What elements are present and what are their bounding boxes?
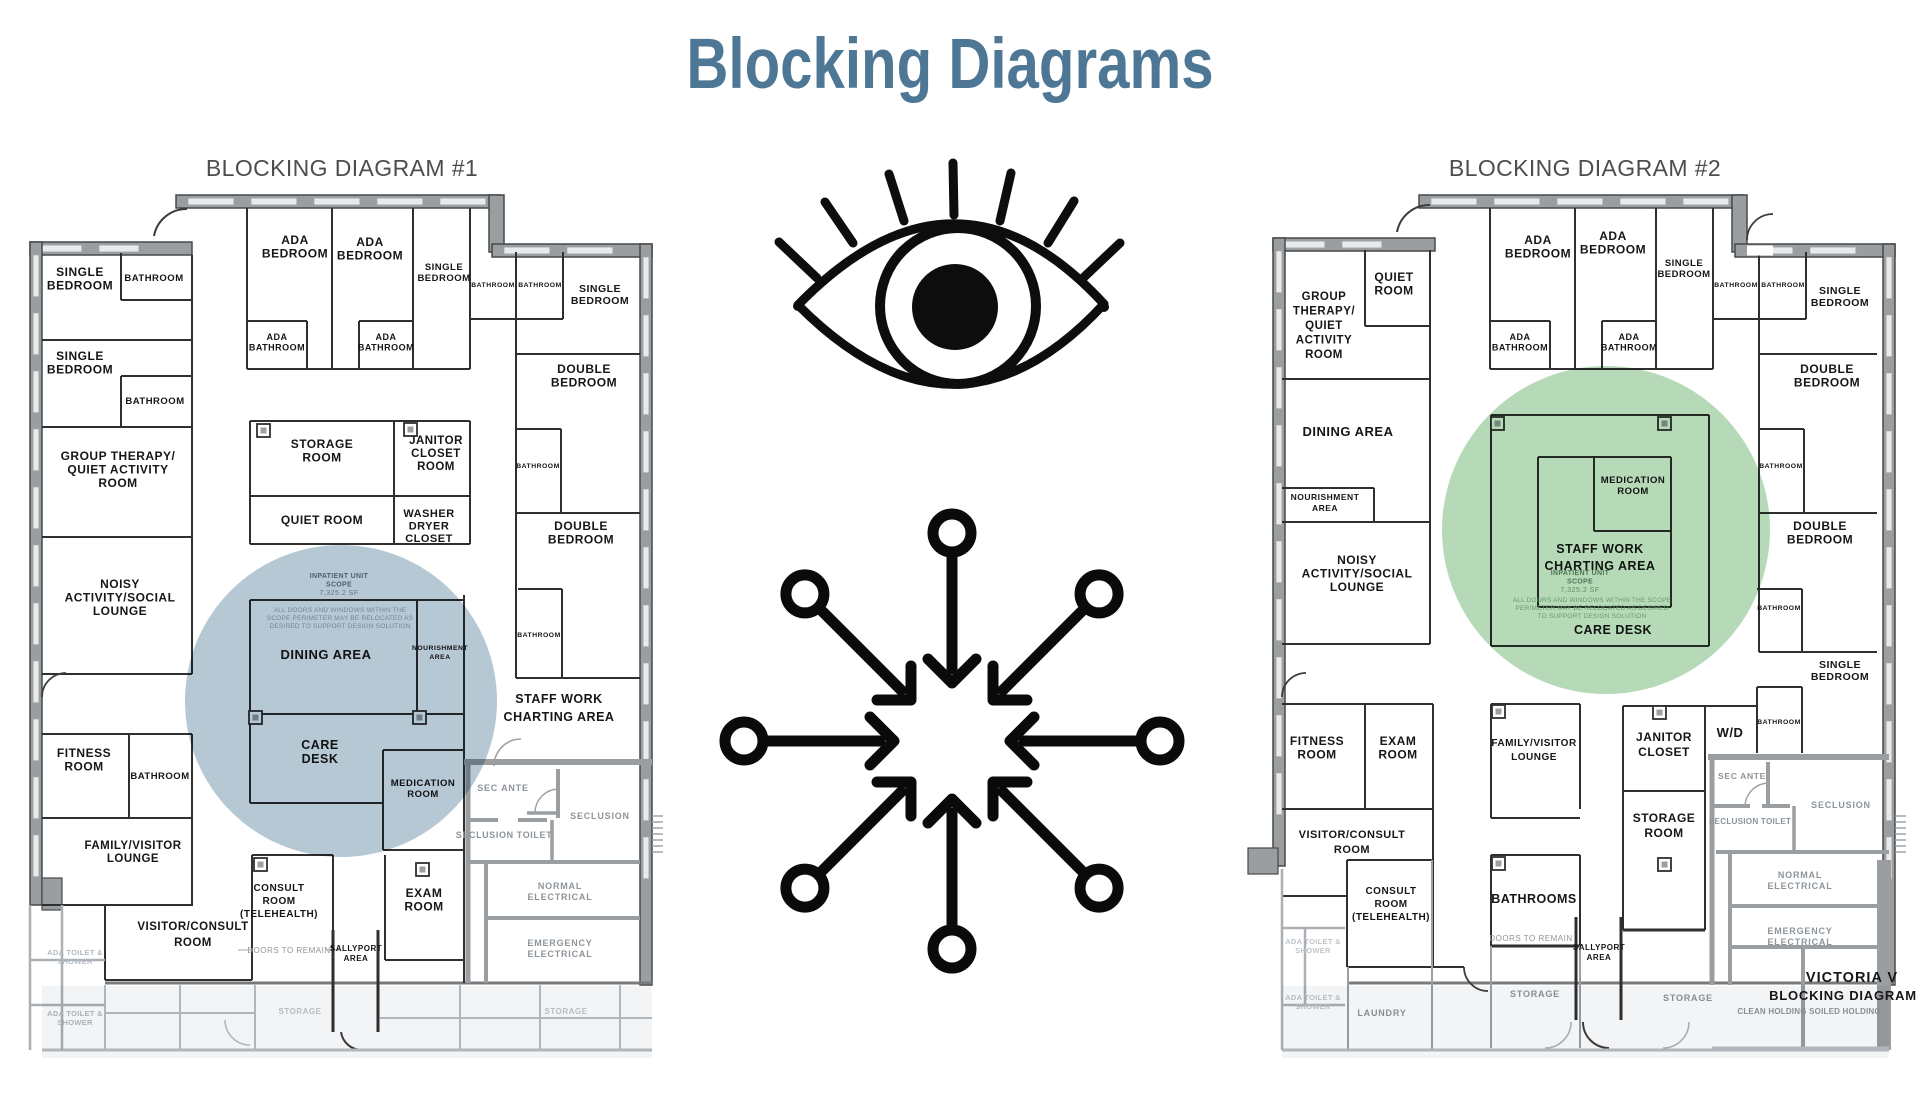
svg-text:ADA TOILET &SHOWER: ADA TOILET &SHOWER [1285, 937, 1341, 955]
svg-text:DOUBLEBEDROOM: DOUBLEBEDROOM [1794, 362, 1860, 390]
svg-text:WASHERDRYERCLOSET: WASHERDRYERCLOSET [403, 508, 454, 545]
svg-text:NOISYACTIVITY/SOCIALLOUNGE: NOISYACTIVITY/SOCIALLOUNGE [65, 577, 176, 618]
svg-text:STAFF WORKCHARTING AREA: STAFF WORKCHARTING AREA [504, 692, 615, 724]
svg-text:ADABATHROOM: ADABATHROOM [358, 332, 414, 353]
svg-text:BATHROOM: BATHROOM [1761, 282, 1805, 289]
svg-text:NOURISHMENTAREA: NOURISHMENTAREA [1291, 492, 1360, 513]
svg-text:STORAGEROOM: STORAGEROOM [1633, 811, 1696, 840]
svg-text:ADABEDROOM: ADABEDROOM [1580, 229, 1646, 257]
svg-text:DINING AREA: DINING AREA [1303, 424, 1394, 439]
svg-text:JANITORCLOSET: JANITORCLOSET [1636, 730, 1692, 759]
svg-text:GROUPTHERAPY/QUIETACTIVITYROOM: GROUPTHERAPY/QUIETACTIVITYROOM [1293, 291, 1355, 361]
svg-text:SECLUSION TOILET: SECLUSION TOILET [456, 830, 552, 840]
svg-text:NORMALELECTRICAL: NORMALELECTRICAL [528, 881, 593, 902]
svg-text:SECLUSION TOILET: SECLUSION TOILET [1709, 817, 1791, 826]
svg-text:FITNESSROOM: FITNESSROOM [1290, 734, 1344, 762]
svg-text:VISITOR/CONSULTROOM: VISITOR/CONSULTROOM [137, 921, 248, 949]
svg-text:BATHROOM: BATHROOM [517, 632, 561, 639]
svg-text:BATHROOMS: BATHROOMS [1491, 892, 1577, 906]
svg-text:DOORS TO REMAIN: DOORS TO REMAIN [247, 946, 330, 955]
svg-text:BATHROOM: BATHROOM [471, 282, 515, 289]
svg-text:ADABATHROOM: ADABATHROOM [1492, 332, 1548, 353]
svg-text:BATHROOM: BATHROOM [1757, 719, 1801, 726]
svg-text:SEC ANTE: SEC ANTE [1718, 771, 1766, 781]
svg-text:EMERGENCYELECTRICAL: EMERGENCYELECTRICAL [1767, 926, 1832, 947]
svg-text:EXAMROOM: EXAMROOM [404, 886, 443, 914]
svg-text:BATHROOM: BATHROOM [1714, 282, 1758, 289]
svg-text:SEC ANTE: SEC ANTE [477, 783, 529, 793]
svg-text:Blocking Diagrams: Blocking Diagrams [686, 23, 1213, 103]
svg-text:NOISYACTIVITY/SOCIALLOUNGE: NOISYACTIVITY/SOCIALLOUNGE [1302, 553, 1413, 594]
svg-text:DOUBLEBEDROOM: DOUBLEBEDROOM [548, 519, 614, 547]
svg-text:SINGLEBEDROOM: SINGLEBEDROOM [571, 283, 629, 307]
svg-text:SINGLEBEDROOM: SINGLEBEDROOM [1657, 258, 1710, 280]
svg-text:SINGLEBEDROOM: SINGLEBEDROOM [1811, 659, 1869, 683]
svg-text:BATHROOM: BATHROOM [125, 396, 184, 407]
svg-text:STORAGEROOM: STORAGEROOM [291, 437, 354, 465]
svg-text:SECLUSION: SECLUSION [1811, 800, 1871, 810]
svg-text:FAMILY/VISITORLOUNGE: FAMILY/VISITORLOUNGE [1491, 738, 1577, 763]
svg-text:DOUBLEBEDROOM: DOUBLEBEDROOM [1787, 519, 1853, 547]
svg-text:BATHROOM: BATHROOM [124, 273, 183, 284]
svg-text:SINGLEBEDROOM: SINGLEBEDROOM [47, 349, 113, 377]
svg-text:CONSULTROOM(TELEHEALTH): CONSULTROOM(TELEHEALTH) [1352, 886, 1430, 923]
svg-text:SINGLEBEDROOM: SINGLEBEDROOM [417, 262, 470, 284]
svg-text:DOUBLEBEDROOM: DOUBLEBEDROOM [551, 362, 617, 390]
svg-text:ADABEDROOM: ADABEDROOM [337, 235, 403, 263]
svg-text:VISITOR/CONSULTROOM: VISITOR/CONSULTROOM [1299, 829, 1406, 856]
svg-text:BLOCKING DIAGRAM #1: BLOCKING DIAGRAM #1 [206, 155, 478, 181]
svg-text:ADABATHROOM: ADABATHROOM [249, 332, 305, 353]
svg-text:ADABATHROOM: ADABATHROOM [1601, 332, 1657, 353]
svg-text:ADABEDROOM: ADABEDROOM [262, 233, 328, 261]
svg-text:BATHROOM: BATHROOM [1759, 463, 1803, 470]
svg-text:BLOCKING DIAGRAM #2: BLOCKING DIAGRAM #2 [1449, 155, 1721, 181]
svg-text:GROUP THERAPY/QUIET ACTIVITYRO: GROUP THERAPY/QUIET ACTIVITYROOM [61, 449, 176, 490]
svg-text:JANITORCLOSETROOM: JANITORCLOSETROOM [409, 435, 463, 473]
svg-text:W/D: W/D [1717, 725, 1744, 740]
svg-text:EXAMROOM: EXAMROOM [1378, 734, 1417, 762]
svg-text:NORMALELECTRICAL: NORMALELECTRICAL [1768, 870, 1833, 891]
svg-text:DOORS TO REMAIN: DOORS TO REMAIN [1489, 934, 1572, 943]
svg-text:SINGLEBEDROOM: SINGLEBEDROOM [47, 265, 113, 293]
svg-text:BATHROOM: BATHROOM [516, 463, 560, 470]
svg-text:FITNESSROOM: FITNESSROOM [57, 746, 111, 774]
svg-text:BATHROOM: BATHROOM [518, 282, 562, 289]
svg-text:EMERGENCYELECTRICAL: EMERGENCYELECTRICAL [527, 938, 592, 959]
svg-text:SALLYPORTAREA: SALLYPORTAREA [330, 944, 382, 963]
svg-text:BATHROOM: BATHROOM [1757, 605, 1801, 612]
svg-text:SINGLEBEDROOM: SINGLEBEDROOM [1811, 285, 1869, 309]
svg-text:FAMILY/VISITORLOUNGE: FAMILY/VISITORLOUNGE [84, 840, 181, 865]
svg-text:BATHROOM: BATHROOM [130, 771, 189, 782]
svg-text:ADABEDROOM: ADABEDROOM [1505, 233, 1571, 261]
svg-text:VICTORIA V: VICTORIA V [1806, 970, 1898, 986]
svg-text:SECLUSION: SECLUSION [570, 811, 630, 821]
svg-text:QUIET ROOM: QUIET ROOM [281, 513, 363, 527]
svg-text:ADA TOILET &SHOWER: ADA TOILET &SHOWER [47, 948, 103, 966]
svg-text:QUIETROOM: QUIETROOM [1374, 270, 1413, 298]
